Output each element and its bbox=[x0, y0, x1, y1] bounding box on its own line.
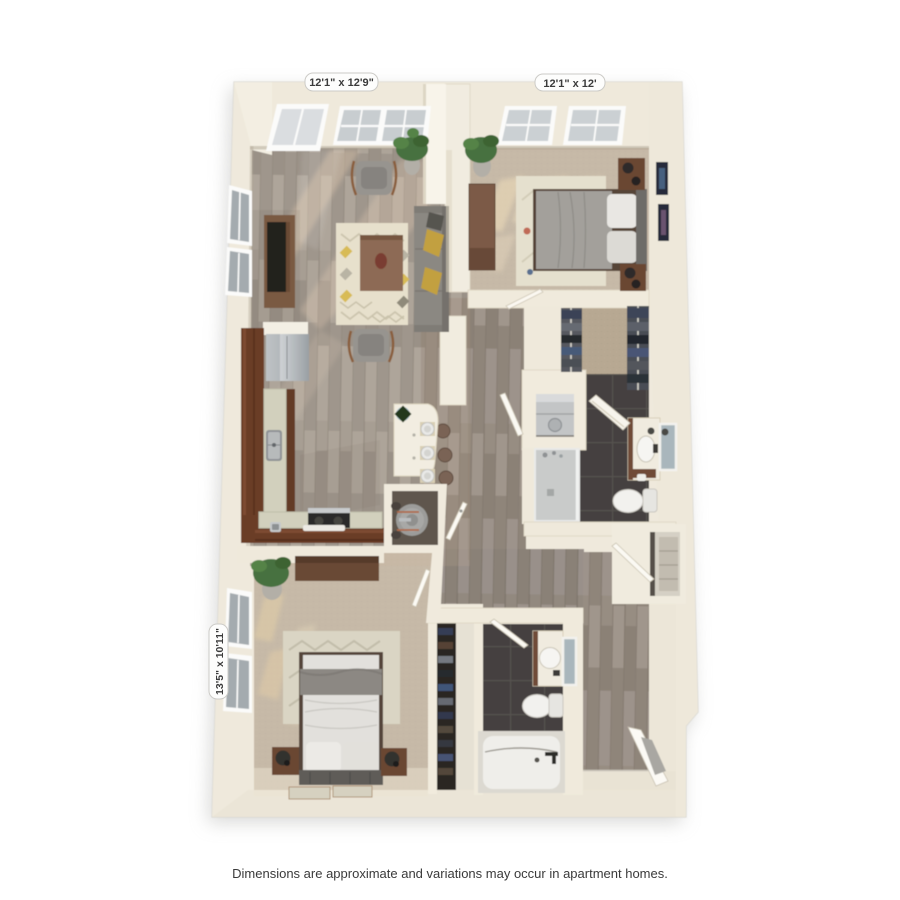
svg-text:12'1" x 12': 12'1" x 12' bbox=[543, 78, 597, 90]
svg-text:13'5" x 10'11": 13'5" x 10'11" bbox=[214, 628, 226, 695]
svg-text:12'1" x 12'9": 12'1" x 12'9" bbox=[309, 77, 374, 89]
